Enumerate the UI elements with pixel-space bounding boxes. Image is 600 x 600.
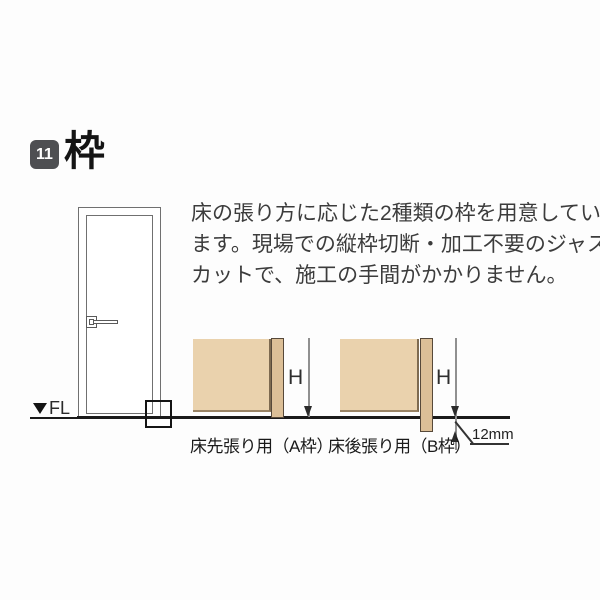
section-number-badge: 11: [30, 140, 59, 169]
diagram-a-arrow-down-icon: [304, 406, 312, 417]
intro-line-3: カットで、施工の手間がかかりません。: [191, 260, 600, 291]
detail-highlight-box: [145, 400, 172, 428]
intro-line-2: ます。現場での縦枠切断・加工不要のジャスト: [191, 229, 600, 260]
intro-line-1: 床の張り方に応じた2種類の枠を用意してい: [191, 198, 600, 229]
diagram-a-caption: 床先張り用（A枠）: [190, 438, 333, 455]
floor-level-label: FL: [49, 399, 70, 417]
offset-label-underline: [470, 443, 509, 445]
diagram-a-frame-strip: [271, 338, 284, 418]
door-slab-outline: [86, 215, 153, 414]
diagram-b-frame-strip: [420, 338, 433, 432]
diagram-b-caption: 床後張り用（B枠）: [328, 438, 471, 455]
diagram-b-height-label: H: [436, 367, 451, 388]
diagram-b-wall-section: [340, 339, 419, 412]
page-title: 枠: [64, 131, 105, 172]
floor-level-marker: FL: [33, 399, 70, 417]
catalog-page: 11 枠 床の張り方に応じた2種類の枠を用意してい ます。現場での縦枠切断・加工…: [0, 0, 600, 600]
floor-line: [77, 416, 510, 419]
section-number: 11: [36, 146, 53, 164]
intro-paragraph: 床の張り方に応じた2種類の枠を用意してい ます。現場での縦枠切断・加工不要のジャ…: [191, 198, 600, 291]
floor-level-underline: [30, 417, 77, 419]
door-handle-lever: [93, 320, 118, 324]
down-triangle-icon: [33, 403, 47, 414]
diagram-b-arrow-down-icon: [451, 406, 459, 417]
diagram-a-height-label: H: [288, 367, 303, 388]
diagram-a-wall-section: [193, 339, 271, 412]
offset-dimension-label: 12mm: [472, 427, 514, 442]
